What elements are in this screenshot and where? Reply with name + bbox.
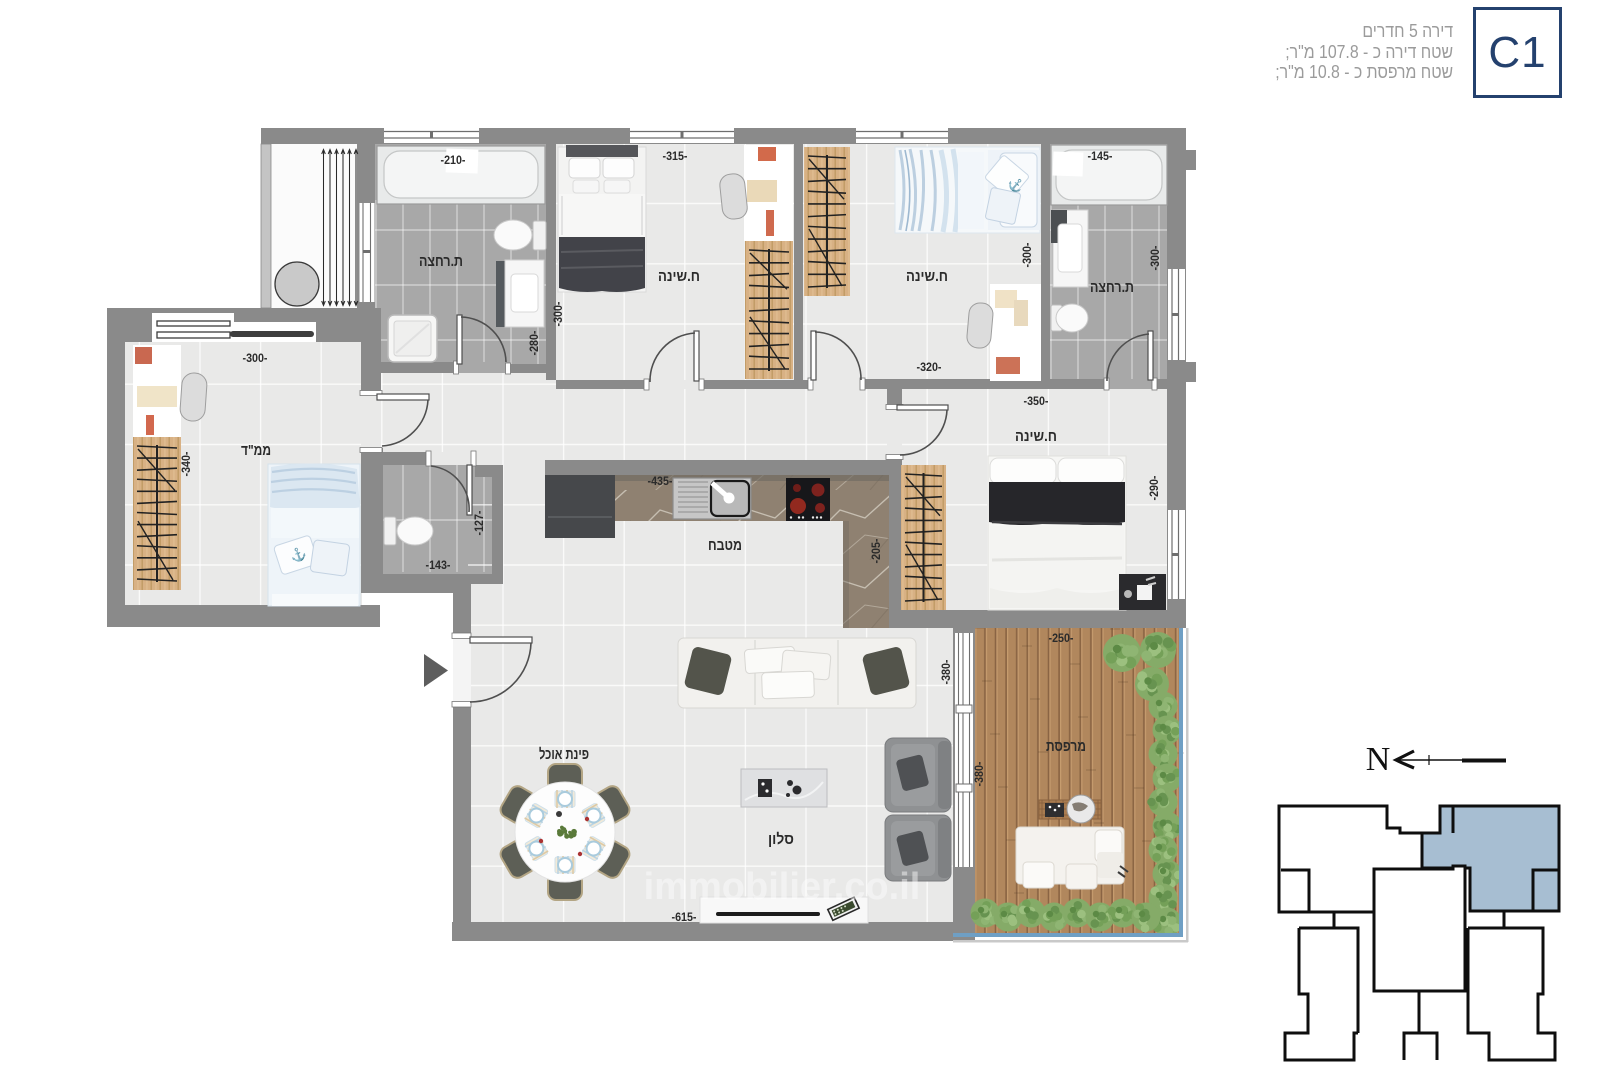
svg-text:מרפסת: מרפסת (1046, 738, 1086, 755)
svg-text:immobilier.co.il: immobilier.co.il (644, 866, 921, 908)
svg-text:-300-: -300- (1150, 245, 1162, 270)
svg-text:-300-: -300- (553, 301, 565, 326)
svg-text:-380-: -380- (941, 659, 953, 684)
svg-text:-300-: -300- (243, 353, 268, 365)
svg-text:N: N (1366, 741, 1391, 778)
svg-text:ח.שינה: ח.שינה (1015, 428, 1057, 445)
svg-text:מטבח: מטבח (708, 537, 742, 554)
svg-text:פינת אוכל: פינת אוכל (539, 746, 589, 763)
svg-text:-320-: -320- (917, 362, 942, 374)
svg-text:-300-: -300- (1022, 242, 1034, 267)
svg-text:-205-: -205- (871, 538, 883, 563)
svg-text:ח.שינה: ח.שינה (658, 268, 700, 285)
svg-text:-350-: -350- (1024, 396, 1049, 408)
svg-text:ת.רחצה: ת.רחצה (419, 253, 463, 270)
svg-text:ח.שינה: ח.שינה (906, 268, 948, 285)
svg-text:-143-: -143- (426, 560, 451, 572)
svg-text:ת.רחצה: ת.רחצה (1090, 279, 1134, 296)
svg-text:סלון: סלון (768, 831, 794, 848)
svg-text:-615-: -615- (672, 912, 697, 924)
svg-text:-127-: -127- (474, 510, 486, 535)
svg-text:-250-: -250- (1049, 633, 1074, 645)
svg-text:-210-: -210- (441, 155, 466, 167)
svg-text:-435-: -435- (648, 476, 673, 488)
svg-text:-380-: -380- (974, 761, 986, 786)
svg-text:-290-: -290- (1149, 475, 1161, 500)
svg-text:ממ"ד: ממ"ד (241, 442, 271, 459)
svg-text:-145-: -145- (1088, 151, 1113, 163)
svg-text:-340-: -340- (181, 451, 193, 476)
svg-text:-315-: -315- (663, 151, 688, 163)
svg-text:-280-: -280- (529, 330, 541, 355)
